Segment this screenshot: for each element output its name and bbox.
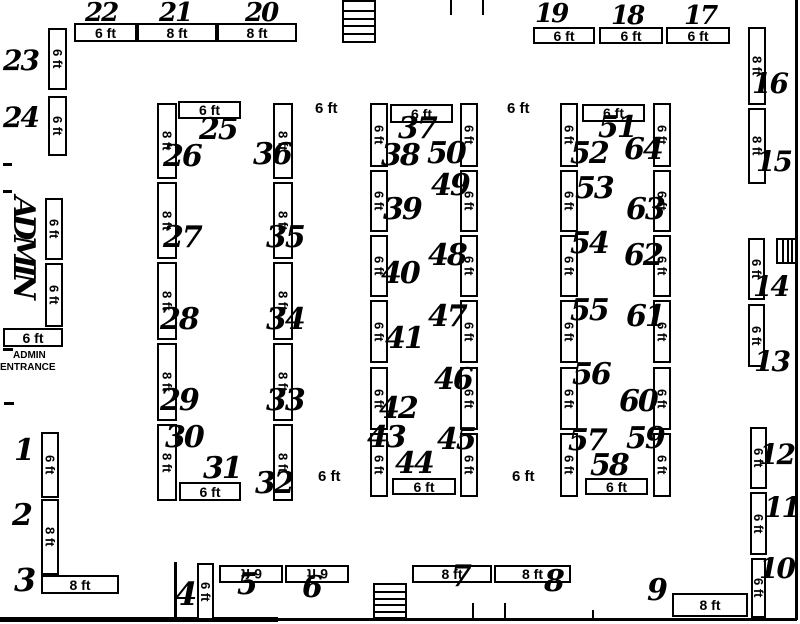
dimension-label: 6 ft	[51, 116, 64, 136]
wall-segment	[482, 0, 484, 15]
booth-number-13: 13	[754, 348, 789, 376]
booth-number-41: 41	[385, 324, 423, 354]
dimension-label: 6 ft	[656, 455, 669, 475]
stair-step	[344, 10, 374, 12]
booth-number-45: 45	[437, 425, 475, 455]
booth-dim-box: 6 ft	[197, 563, 214, 620]
stair-step	[375, 611, 405, 613]
booth-number-64: 64	[624, 135, 662, 165]
booth-number-44: 44	[395, 449, 433, 479]
stair-step	[782, 240, 784, 262]
wall-segment	[3, 190, 12, 193]
dimension-label: 6 ft	[750, 326, 763, 346]
booth-number-4: 4	[175, 578, 195, 610]
aisle-dimension-label: 6 ft	[315, 100, 338, 117]
wall-segment	[450, 0, 452, 15]
dimension-label: 6 ft	[563, 455, 576, 475]
booth-dim-box: 6 ft	[41, 432, 59, 498]
booth-number-53: 53	[575, 174, 613, 204]
booth-number-63: 63	[626, 195, 664, 225]
wall-segment	[472, 603, 474, 618]
stairs	[776, 238, 797, 264]
dimension-label: 6 ft	[373, 455, 386, 475]
booth-number-54: 54	[570, 229, 608, 259]
dimension-label: 6 ft	[656, 389, 669, 409]
dimension-label: 8 ft	[44, 527, 57, 547]
dimension-label: 6 ft	[44, 455, 57, 475]
booth-number-7: 7	[451, 562, 470, 592]
stairs	[342, 0, 376, 43]
booth-number-30: 30	[165, 423, 203, 453]
booth-number-61: 61	[626, 302, 664, 332]
booth-number-25: 25	[199, 115, 237, 145]
dimension-label: 6 ft	[414, 480, 435, 494]
booth-number-59: 59	[626, 424, 664, 454]
booth-number-26: 26	[163, 142, 201, 172]
booth-number-20: 20	[245, 0, 277, 26]
wall-segment	[795, 0, 798, 620]
dimension-label: 6 ft	[48, 219, 61, 239]
booth-number-19: 19	[535, 1, 567, 27]
booth-number-35: 35	[266, 223, 304, 253]
booth-number-60: 60	[619, 387, 657, 417]
stair-step	[791, 240, 793, 262]
booth-number-9: 9	[647, 576, 666, 606]
dimension-label: 8 ft	[161, 453, 174, 473]
dimension-label: 6 ft	[463, 455, 476, 475]
dimension-label: 8 ft	[522, 567, 543, 581]
booth-number-8: 8	[544, 567, 563, 597]
booth-number-50: 50	[427, 139, 465, 169]
booth-number-40: 40	[381, 259, 419, 289]
dimension-label: 6 ft	[563, 191, 576, 211]
booth-number-2: 2	[12, 501, 31, 531]
booth-number-62: 62	[624, 241, 662, 271]
booth-dim-box: 6 ft	[533, 27, 595, 44]
aisle-dimension-label: 6 ft	[512, 468, 535, 485]
booth-dim-box: 8 ft	[41, 575, 119, 594]
admin-area-label: ADMIN	[8, 196, 38, 295]
booth-number-29: 29	[160, 386, 198, 416]
booth-number-33: 33	[266, 386, 304, 416]
dimension-label: 6 ft	[51, 49, 64, 69]
booth-number-39: 39	[383, 195, 421, 225]
booth-number-49: 49	[431, 171, 469, 201]
stair-step	[375, 591, 405, 593]
booth-number-47: 47	[428, 302, 466, 332]
booth-number-38: 38	[381, 141, 419, 171]
booth-dim-box: 8 ft	[41, 499, 59, 575]
booth-number-11: 11	[764, 494, 799, 522]
stair-step	[344, 33, 374, 35]
dimension-label: 6 ft	[48, 285, 61, 305]
booth-number-24: 24	[3, 104, 38, 132]
booth-number-16: 16	[752, 70, 787, 98]
booth-dim-box: 6 ft	[48, 28, 67, 90]
booth-number-32: 32	[255, 469, 293, 499]
booth-number-36: 36	[253, 140, 291, 170]
booth-dim-box: 6 ft	[3, 328, 63, 347]
dimension-label: 6 ft	[23, 331, 44, 345]
stair-step	[344, 18, 374, 20]
booth-number-21: 21	[159, 0, 191, 26]
stair-step	[375, 598, 405, 600]
aisle-dimension-label: 6 ft	[507, 100, 530, 117]
booth-number-58: 58	[590, 451, 628, 481]
wall-segment	[3, 348, 13, 351]
booth-number-48: 48	[428, 241, 466, 271]
booth-number-14: 14	[753, 273, 788, 301]
booth-number-31: 31	[203, 454, 241, 484]
stair-step	[787, 240, 789, 262]
stairs	[373, 583, 407, 619]
stair-step	[344, 25, 374, 27]
booth-number-28: 28	[160, 305, 198, 335]
booth-number-17: 17	[684, 3, 716, 29]
stair-step	[375, 604, 405, 606]
booth-dim-box: 8 ft	[672, 593, 748, 617]
booth-number-18: 18	[611, 3, 643, 29]
booth-number-46: 46	[434, 365, 472, 395]
wall-segment	[592, 610, 594, 618]
booth-number-23: 23	[3, 47, 38, 75]
booth-dim-box: 6 ft	[45, 198, 63, 260]
booth-number-56: 56	[572, 360, 610, 390]
booth-number-1: 1	[14, 436, 33, 466]
booth-dim-box: 6 ft	[48, 96, 67, 156]
wall-segment	[0, 617, 278, 622]
booth-number-34: 34	[266, 305, 304, 335]
booth-number-22: 22	[85, 0, 117, 26]
wall-segment	[4, 402, 14, 405]
dimension-label: 8 ft	[70, 578, 91, 592]
wall-segment	[504, 603, 506, 618]
dimension-label: 8 ft	[700, 598, 721, 612]
wall-segment	[278, 618, 797, 621]
floor-plan-canvas: ADMIN ADMIN ENTRANCE 6 ft8 ft8 ft6 ft6 f…	[0, 0, 800, 624]
dimension-label: 6 ft	[554, 29, 575, 43]
booth-number-5: 5	[237, 570, 256, 600]
dimension-label: 6 ft	[200, 485, 221, 499]
dimension-label: 6 ft	[373, 322, 386, 342]
booth-number-6: 6	[302, 573, 321, 603]
booth-number-12: 12	[759, 441, 794, 469]
admin-entrance-label-line2: ENTRANCE	[0, 362, 56, 373]
dimension-label: 6 ft	[199, 582, 212, 602]
booth-number-3: 3	[14, 564, 34, 596]
booth-number-27: 27	[163, 223, 201, 253]
aisle-dimension-label: 6 ft	[318, 468, 341, 485]
booth-number-10: 10	[759, 555, 794, 583]
booth-number-52: 52	[570, 139, 608, 169]
booth-number-15: 15	[756, 148, 791, 176]
wall-segment	[3, 163, 12, 166]
booth-dim-box: 6 ft	[45, 263, 63, 327]
admin-entrance-label-line1: ADMIN	[13, 350, 46, 361]
booth-number-55: 55	[570, 296, 608, 326]
